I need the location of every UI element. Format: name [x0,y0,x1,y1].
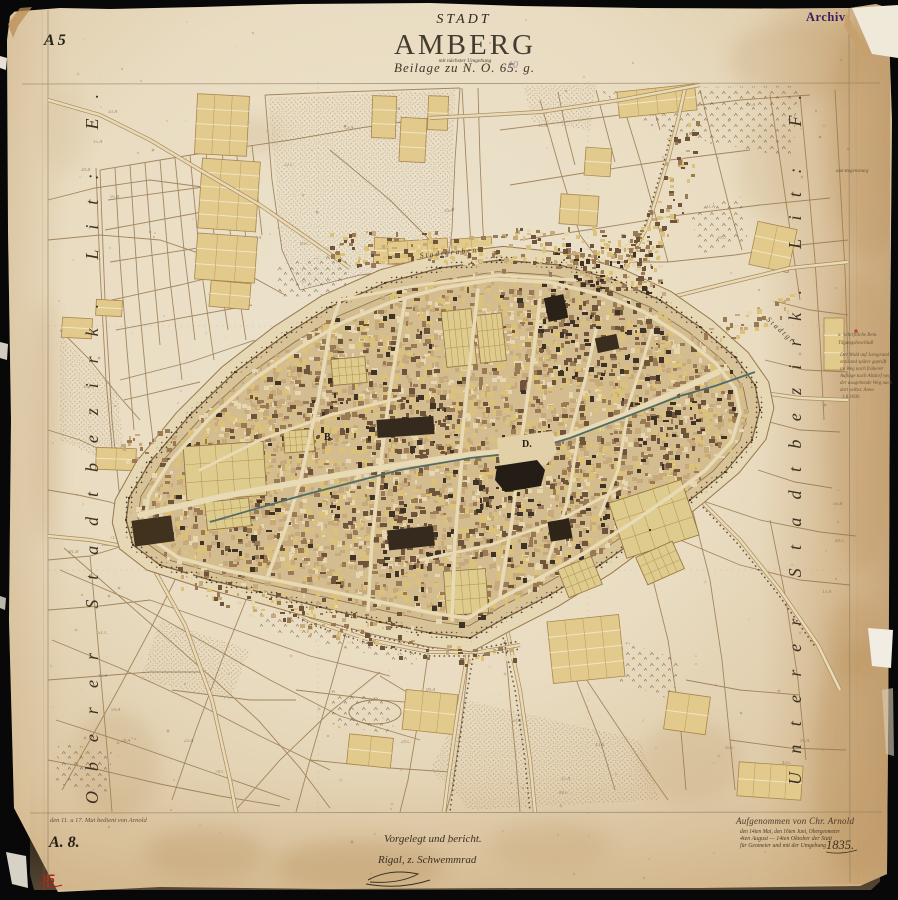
svg-text:D.: D. [522,439,532,450]
svg-text:und Regensburg: und Regensburg [836,169,869,174]
svg-text:23.A: 23.A [184,739,194,744]
svg-text:91.A: 91.A [800,739,810,744]
svg-text:89.C: 89.C [300,242,310,247]
svg-text:72.A: 72.A [344,126,354,131]
svg-text:84.C: 84.C [559,791,569,796]
svg-text:28.A: 28.A [121,739,131,744]
svg-text:10: 10 [508,60,518,71]
svg-text:11.A: 11.A [706,205,716,210]
svg-text:13.A: 13.A [822,590,832,595]
svg-text:16.A: 16.A [538,124,548,129]
svg-text:37.A: 37.A [561,777,571,782]
svg-text:1835.: 1835. [826,838,854,852]
svg-text:4ten August — 14ten Oktober de: 4ten August — 14ten Oktober der Statt [740,835,832,842]
svg-text:C.: C. [518,462,528,473]
svg-text:a. Schriftliche Bem.: a. Schriftliche Bem. [838,333,877,338]
svg-text:A 5: A 5 [43,32,66,49]
svg-text:entstand später geprüft: entstand später geprüft [840,360,887,365]
svg-text:Aufgenommen von Chr. Arnold: Aufgenommen von Chr. Arnold [735,816,855,826]
svg-text:A. 8.: A. 8. [48,834,80,851]
svg-text:Auflage nach Altdorf weg: Auflage nach Altdorf weg [839,374,892,379]
svg-text:Der Wald auf Juragrund: Der Wald auf Juragrund [839,353,890,358]
svg-text:56.B: 56.B [833,502,842,507]
svg-text:STADT: STADT [436,12,491,27]
svg-text:1.8.1836: 1.8.1836 [842,395,860,400]
svg-text:43.B: 43.B [595,743,604,748]
svg-text:15.A: 15.A [93,140,103,145]
svg-text:22.C: 22.C [284,163,294,168]
svg-text:im Weg nach früherer: im Weg nach früherer [840,367,883,372]
svg-text:Vorgelegt und bericht.: Vorgelegt und bericht. [384,833,482,845]
svg-text:AMBERG: AMBERG [394,29,536,61]
svg-text:33.A: 33.A [108,110,118,115]
svg-text:dort selbst. Anno: dort selbst. Anno [840,388,874,393]
svg-text:30.B: 30.B [81,168,90,173]
svg-text:43.A: 43.A [746,103,756,108]
svg-text:95.B: 95.B [110,195,119,200]
svg-text:Rigal, z. Schwemmrad: Rigal, z. Schwemmrad [377,854,477,866]
svg-text:der ausgehende Weg nach: der ausgehende Weg nach [840,381,893,386]
svg-text:35: 35 [39,872,56,888]
svg-text:den 11. u 17. Mai bedient von: den 11. u 17. Mai bedient von Arnold [50,817,147,824]
svg-text:81.B: 81.B [69,550,78,555]
svg-text:10.A: 10.A [444,209,454,214]
svg-text:Archiv: Archiv [806,10,846,24]
svg-text:B.: B. [324,432,334,443]
svg-text:30.C: 30.C [717,236,727,241]
svg-text:95.C: 95.C [725,746,735,751]
svg-text:78.C: 78.C [215,770,225,775]
svg-text:für Geometer und mit der Umgeb: für Geometer und mit der Umgebung [740,842,826,849]
svg-text:den 14ten Mai, den 16ten Juni,: den 14ten Mai, den 16ten Juni, Obergeome… [740,828,841,835]
svg-text:42.B: 42.B [98,674,107,679]
svg-text:59.A: 59.A [111,708,121,713]
svg-text:Tilgungsbeschluß: Tilgungsbeschluß [838,341,874,346]
svg-text:20.C: 20.C [401,740,411,745]
svg-text:60.C: 60.C [835,539,845,544]
